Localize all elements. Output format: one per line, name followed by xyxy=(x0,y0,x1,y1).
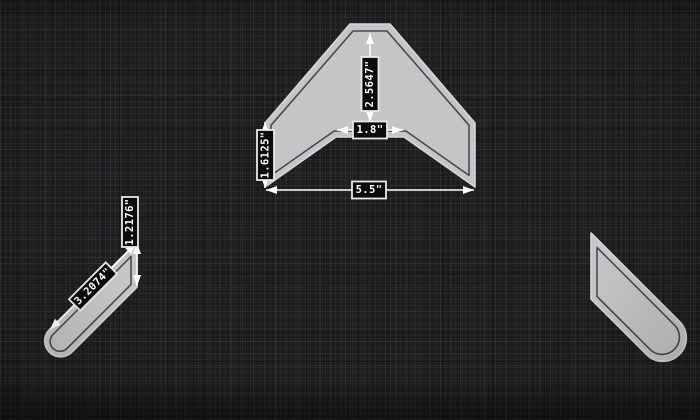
arrowhead-left-icon xyxy=(266,186,277,194)
dimension-label: 1.6125" xyxy=(257,130,274,180)
cut-layout-canvas: 2.5647" 1.8" 1.6125" xyxy=(0,0,700,420)
dimension-chevron-end-height: 1.6125" xyxy=(257,122,274,188)
dimension-label: 1.8" xyxy=(353,122,387,139)
dimension-label-text: 1.2176" xyxy=(124,198,136,245)
dimension-label: 2.5647" xyxy=(362,57,379,111)
arrowhead-right-icon xyxy=(463,186,474,194)
dimension-label-text: 5.5" xyxy=(356,184,383,196)
dimension-label: 1.2176" xyxy=(122,197,138,247)
dimension-label: 5.5" xyxy=(352,182,386,199)
dimension-label-text: 2.5647" xyxy=(364,60,376,107)
dimension-chevron-overall-width: 5.5" xyxy=(266,182,474,199)
dimension-label-text: 1.8" xyxy=(357,124,384,136)
part-right-arm[interactable] xyxy=(591,233,686,361)
dimension-label-text: 1.6125" xyxy=(260,131,272,178)
part-right-arm-outline[interactable] xyxy=(591,233,686,361)
parts-drawing: 2.5647" 1.8" 1.6125" xyxy=(0,0,700,420)
